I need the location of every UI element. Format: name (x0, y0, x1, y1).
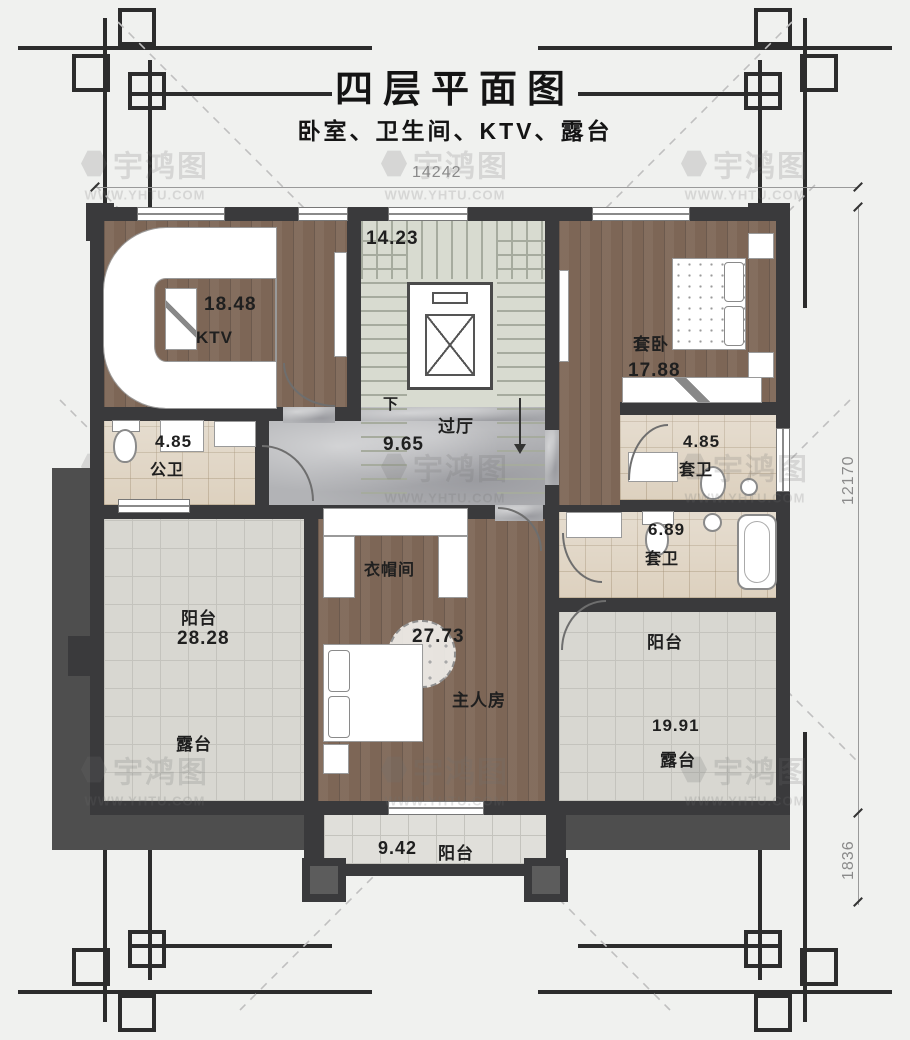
stairwell-area: 14.23 (366, 228, 419, 250)
suite-bedroom-label: 套卧 (633, 330, 669, 355)
shower-head-icon (703, 513, 722, 532)
elevator-panel (432, 292, 468, 304)
bathtub-inner (744, 521, 770, 583)
floor-plan-canvas: 四层平面图 卧室、卫生间、KTV、露台 宇鸿图 WWW.YHTU.COM 宇鸿图… (0, 0, 910, 1040)
ktv-area: 18.48 (204, 294, 257, 316)
suite-bath-upper-label: 套卫 (679, 456, 713, 480)
terrace-left-sub-label: 露台 (176, 730, 212, 755)
suite-door-leaf (559, 270, 569, 362)
pillow (724, 262, 744, 302)
ktv-coffee-table (165, 288, 197, 350)
stairs-right-flight (497, 240, 545, 502)
terrace-left-area: 28.28 (177, 628, 230, 650)
pillow (724, 306, 744, 346)
terrace-left-floor (104, 519, 304, 801)
window (137, 207, 225, 221)
stairs-down-arrow-icon (514, 444, 526, 460)
master-label: 主人房 (452, 686, 506, 711)
terrace-right-area: 19.91 (652, 716, 700, 736)
dimension-top-value: 14242 (412, 164, 462, 182)
dimension-right-value: 12170 (840, 456, 858, 506)
balcony-bottom-floor (324, 815, 546, 864)
cloakroom-wardrobe-right (438, 536, 468, 598)
stairs-arrow-line (519, 398, 521, 446)
cloakroom-wardrobe-left (323, 536, 355, 598)
window (298, 207, 348, 221)
ktv-door-opening (283, 407, 335, 423)
suite-corridor-floor (559, 402, 620, 505)
suite-bath-lower-area: 6.89 (648, 520, 685, 540)
tv-cabinet (334, 252, 347, 357)
suite-bath-lower-label: 套卫 (645, 545, 679, 569)
cloakroom-wardrobe-top (323, 508, 468, 536)
dimension-line-top (95, 187, 858, 188)
master-area: 27.73 (412, 626, 465, 648)
hallway-label: 过厅 (438, 412, 474, 437)
stairwell-direction: 下 (383, 393, 399, 414)
suite-bath-upper-area: 4.85 (683, 432, 720, 452)
pillar-terrace-left (68, 636, 104, 676)
balcony-parapet (346, 864, 524, 876)
ktv-label: KTV (196, 328, 233, 348)
window (776, 428, 790, 492)
shower-head-icon (740, 478, 758, 496)
dimension-bottom-right-value: 1836 (840, 840, 858, 880)
page-title: 四层平面图 (0, 58, 910, 113)
toilet-icon (113, 429, 137, 463)
suite-bedroom-area: 17.88 (628, 360, 681, 382)
pillow (328, 696, 350, 738)
bathtub (737, 514, 777, 590)
sink (214, 421, 256, 447)
balcony-sliding-door (388, 801, 484, 815)
nightstand (748, 352, 774, 378)
pillow (328, 650, 350, 692)
balcony-pillar-left-cap (310, 866, 338, 894)
hallway-area: 9.65 (383, 434, 424, 456)
nightstand (323, 744, 349, 774)
dimension-line-right (858, 207, 859, 905)
elevator-cross-icon (425, 314, 475, 376)
nightstand (748, 233, 774, 259)
public-bath-area: 4.85 (155, 432, 192, 452)
terrace-right-sub-label: 露台 (660, 746, 696, 771)
stairs-left-flight (361, 240, 407, 502)
window (592, 207, 690, 221)
balcony-bottom-label: 阳台 (438, 839, 474, 864)
balcony-bottom-area: 9.42 (378, 838, 417, 859)
public-bath-label: 公卫 (150, 456, 184, 480)
terrace-left-label: 阳台 (181, 604, 217, 629)
window (118, 499, 190, 513)
cloakroom-label: 衣帽间 (364, 556, 415, 580)
balcony-pillar-right-cap (532, 866, 560, 894)
terrace-right-label: 阳台 (647, 628, 683, 653)
corridor-door-opening (545, 430, 559, 485)
window (388, 207, 468, 221)
page-subtitle: 卧室、卫生间、KTV、露台 (0, 112, 910, 146)
